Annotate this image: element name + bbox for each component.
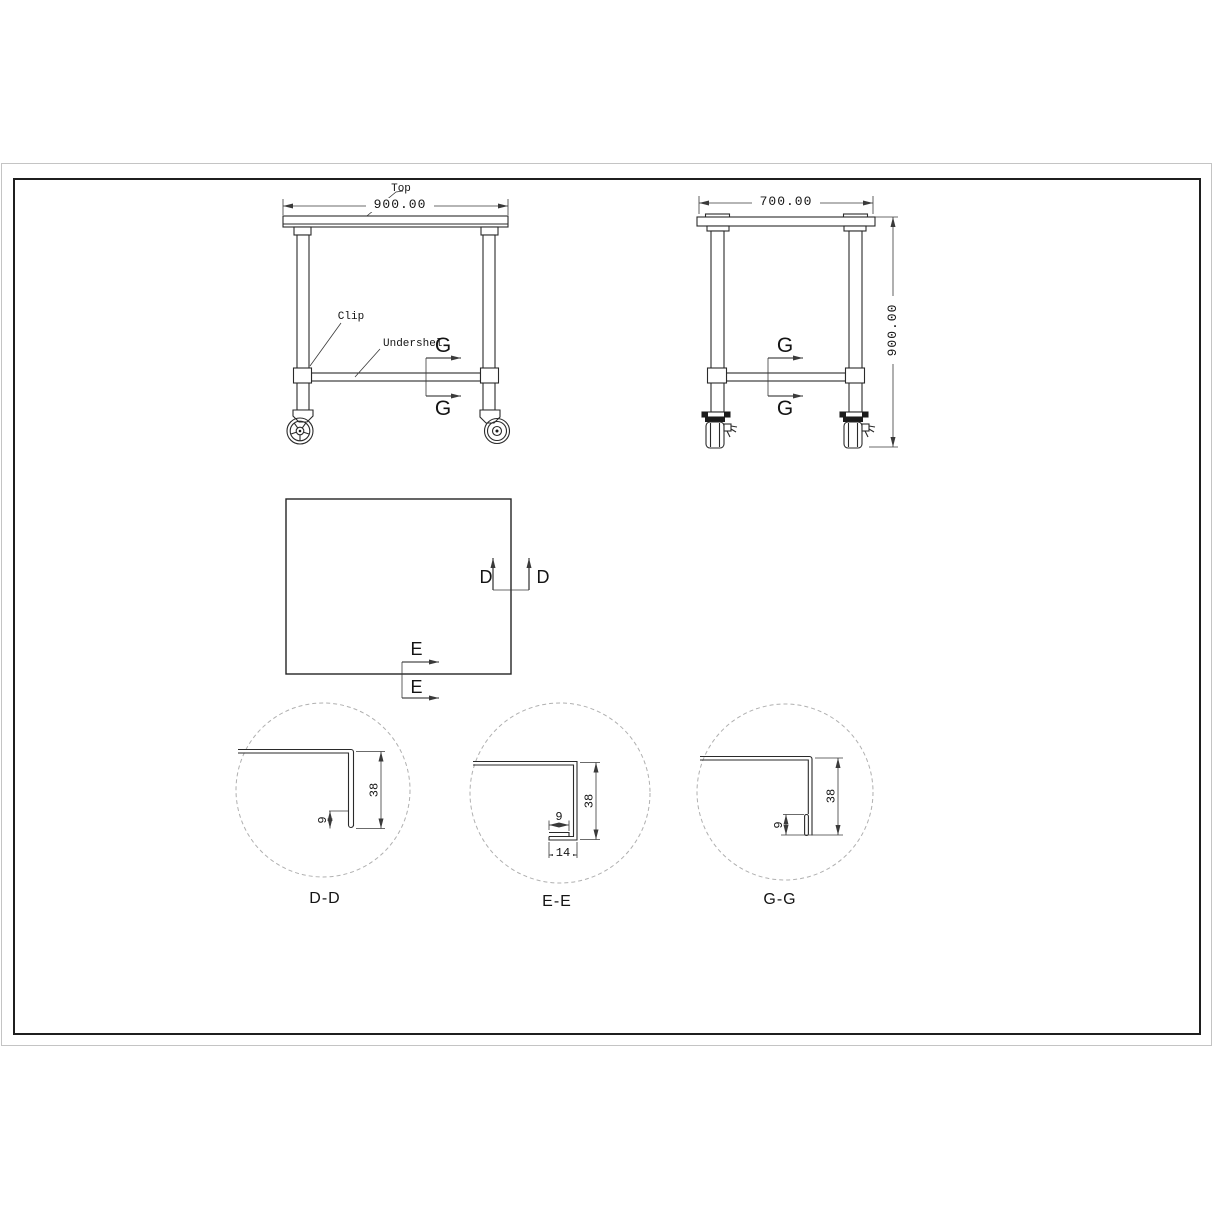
front-view (283, 191, 510, 444)
side-right-caster (840, 412, 875, 448)
side-height-dimension: 900.00 (886, 296, 900, 364)
plan-view (286, 499, 529, 698)
plan-section-e-bottom: E (409, 678, 424, 697)
front-width-dimension: 900.00 (366, 198, 434, 212)
side-width-dimension: 700.00 (752, 195, 820, 209)
detail-gg (697, 704, 873, 880)
plan-section-d-right: D (535, 568, 551, 587)
ee-height-dimension: 38 (583, 792, 595, 811)
front-section-letter-top: G (434, 335, 452, 357)
front-clip-label: Clip (335, 311, 367, 324)
front-top-label: Top (390, 183, 412, 196)
dd-hem-dimension: 9 (316, 815, 328, 825)
side-view (697, 196, 898, 448)
dd-height-dimension: 38 (368, 781, 380, 800)
gg-height-dimension: 38 (825, 787, 837, 806)
drawing-linework (0, 0, 1214, 1214)
gg-view-label: G-G (755, 891, 805, 908)
plan-section-e-top: E (409, 640, 424, 659)
front-left-caster (287, 410, 313, 444)
dd-view-label: D-D (300, 890, 350, 907)
drawing-canvas: Top 900.00 Clip Undershel G G 700.00 900… (0, 0, 1214, 1214)
side-section-letter-bottom: G (776, 398, 794, 420)
side-left-caster (702, 412, 737, 448)
front-right-caster (480, 410, 510, 444)
ee-return-dimension: 14 (553, 846, 573, 860)
plan-section-d-left: D (478, 568, 494, 587)
side-section-letter-top: G (776, 335, 794, 357)
gg-hem-dimension: 9 (772, 820, 784, 830)
detail-dd (236, 703, 410, 877)
ee-hem-dimension: 9 (552, 810, 566, 824)
front-section-letter-bottom: G (434, 398, 452, 420)
ee-view-label: E-E (532, 893, 582, 910)
